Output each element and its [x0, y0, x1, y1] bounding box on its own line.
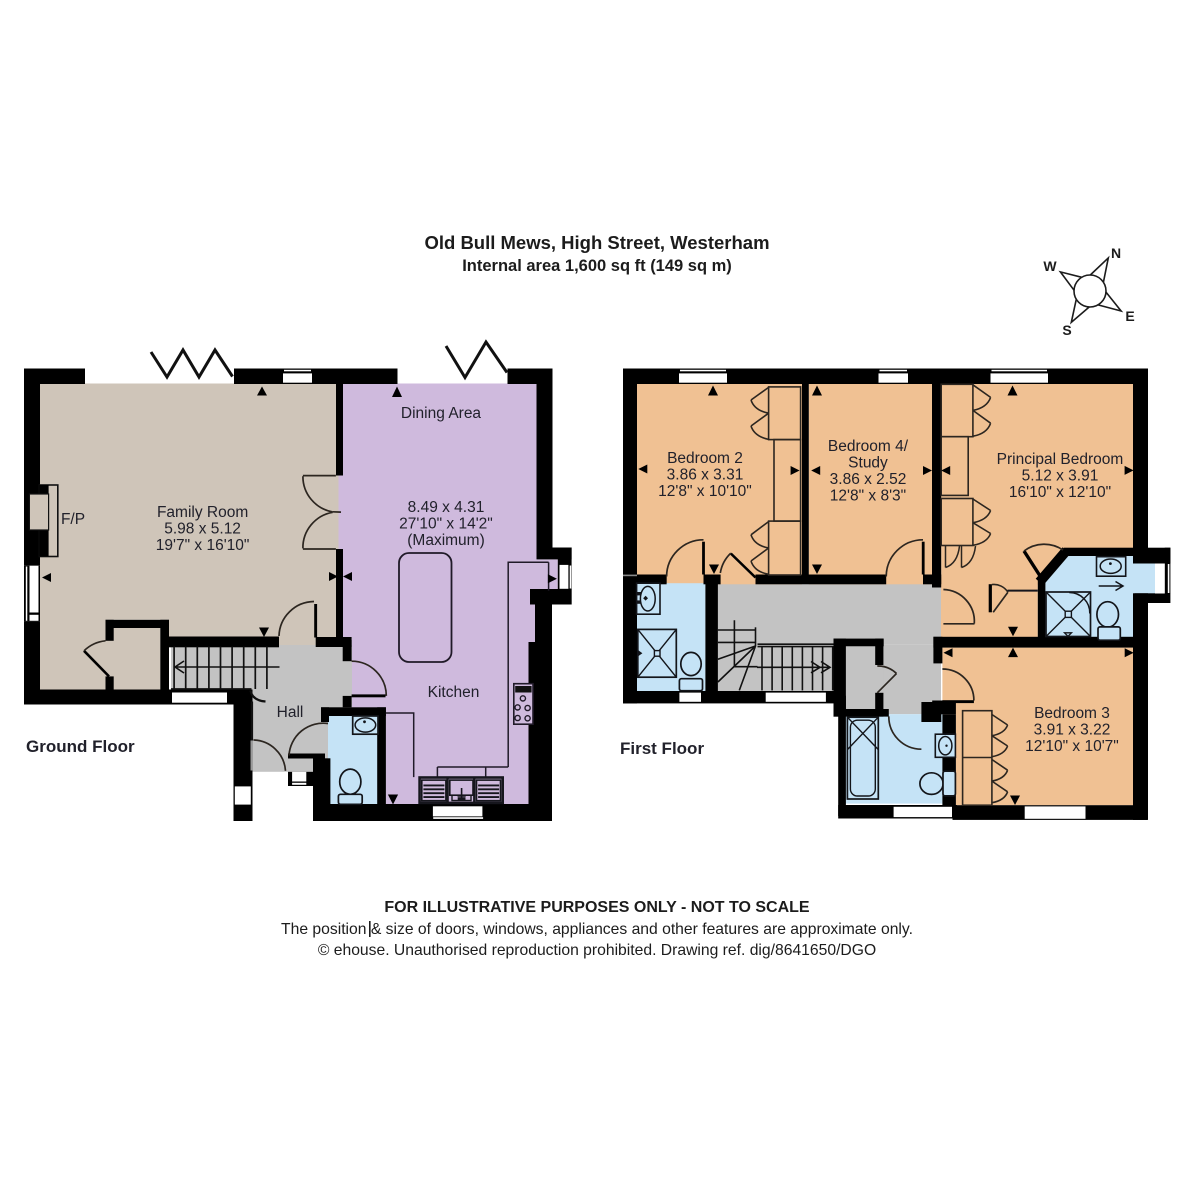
svg-text:8.49 x 4.31: 8.49 x 4.31 [408, 499, 485, 516]
svg-text:5.98 x 5.12: 5.98 x 5.12 [164, 521, 241, 538]
svg-text:The position & size of doors,: The position & size of doors, windows, a… [281, 921, 913, 938]
svg-text:16'10" x 12'10": 16'10" x 12'10" [1009, 484, 1111, 501]
svg-text:N: N [1111, 245, 1121, 261]
svg-text:12'8" x 10'10": 12'8" x 10'10" [658, 483, 752, 500]
svg-text:12'10" x 10'7": 12'10" x 10'7" [1025, 738, 1119, 755]
svg-text:Principal Bedroom: Principal Bedroom [997, 451, 1124, 468]
svg-text:Ground Floor: Ground Floor [26, 737, 135, 756]
svg-text:5.12 x 3.91: 5.12 x 3.91 [1022, 468, 1099, 485]
svg-text:3.86 x 2.52: 3.86 x 2.52 [830, 471, 907, 488]
svg-text:F/P: F/P [61, 511, 85, 528]
svg-text:Dining Area: Dining Area [401, 405, 482, 422]
svg-text:Bedroom 3: Bedroom 3 [1034, 705, 1110, 722]
svg-text:Study: Study [848, 455, 888, 472]
svg-text:3.91 x 3.22: 3.91 x 3.22 [1034, 722, 1111, 739]
svg-text:S: S [1062, 322, 1071, 338]
svg-text:Bedroom 2: Bedroom 2 [667, 450, 743, 467]
svg-text:27'10" x 14'2": 27'10" x 14'2" [399, 516, 493, 533]
svg-text:Internal area 1,600 sq ft (149: Internal area 1,600 sq ft (149 sq m) [462, 257, 732, 275]
svg-text:Bedroom 4/: Bedroom 4/ [828, 438, 909, 455]
svg-text:Kitchen: Kitchen [428, 684, 480, 701]
svg-text:12'8" x 8'3": 12'8" x 8'3" [830, 488, 906, 505]
svg-text:W: W [1043, 258, 1057, 274]
svg-text:3.86 x 3.31: 3.86 x 3.31 [667, 467, 744, 484]
svg-text:(Maximum): (Maximum) [407, 532, 485, 549]
svg-text:© ehouse. Unauthorised reprodu: © ehouse. Unauthorised reproduction proh… [318, 942, 876, 959]
svg-text:Hall: Hall [277, 704, 304, 721]
svg-text:Old Bull Mews, High Street, We: Old Bull Mews, High Street, Westerham [424, 232, 769, 253]
svg-text:FOR ILLUSTRATIVE PURPOSES ONLY: FOR ILLUSTRATIVE PURPOSES ONLY - NOT TO … [384, 899, 810, 916]
svg-text:E: E [1125, 308, 1134, 324]
svg-text:First Floor: First Floor [620, 739, 704, 758]
svg-text:19'7" x 16'10": 19'7" x 16'10" [156, 537, 250, 554]
svg-text:Family Room: Family Room [157, 504, 248, 521]
